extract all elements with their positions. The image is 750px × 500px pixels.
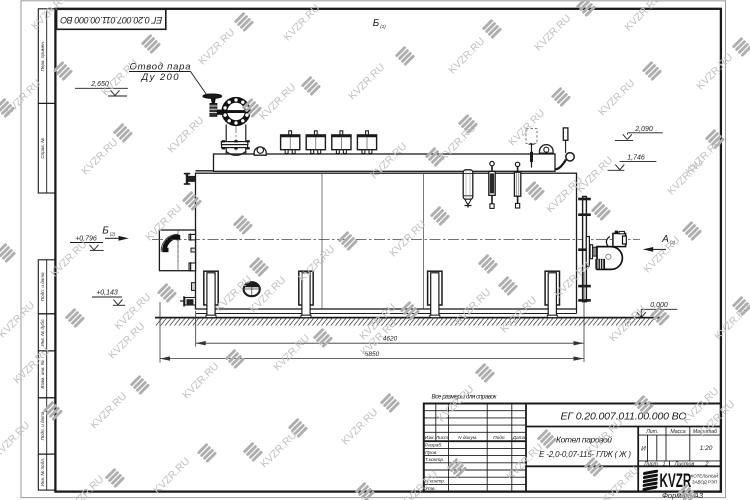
svg-text:Подп. и дата: Подп. и дата (40, 272, 45, 301)
svg-text:Масса: Масса (670, 429, 685, 435)
svg-text:Лист: Лист (643, 461, 658, 467)
svg-text:KVZR.RU: KVZR.RU (79, 136, 120, 177)
svg-text:Подп. и дата: Подп. и дата (40, 411, 45, 440)
svg-text:Т.контр.: Т.контр. (425, 457, 444, 463)
svg-text:KVZR.RU: KVZR.RU (0, 299, 37, 340)
svg-text:KVZR.RU: KVZR.RU (506, 107, 547, 148)
svg-text:N докум.: N докум. (458, 435, 477, 441)
svg-text:KVZR.RU: KVZR.RU (99, 57, 140, 98)
svg-text:KVZR.RU: KVZR.RU (665, 156, 706, 197)
svg-text:Изм.: Изм. (425, 435, 435, 441)
svg-text:Инв. № дубл.: Инв. № дубл. (40, 318, 45, 346)
svg-text:Лист: Лист (435, 435, 448, 441)
svg-text:ЕГ 0.20.007.011.00.000 ВО: ЕГ 0.20.007.011.00.000 ВО (561, 411, 687, 423)
svg-text:КОТЕЛЬНЫЙ: КОТЕЛЬНЫЙ (691, 474, 719, 479)
svg-text:+0,143: +0,143 (96, 290, 118, 297)
svg-text:1,746: 1,746 (627, 155, 645, 162)
svg-text:1: 1 (663, 461, 666, 467)
svg-text:KVZR.RU: KVZR.RU (11, 345, 52, 386)
svg-text:KVZR.RU: KVZR.RU (622, 0, 663, 33)
svg-text:KVZR.RU: KVZR.RU (446, 35, 487, 76)
svg-text:KVZR.RU: KVZR.RU (151, 455, 192, 496)
svg-text:ЗАВОД РЭП: ЗАВОД РЭП (692, 480, 718, 485)
svg-text:Справ. №: Справ. № (40, 138, 45, 159)
svg-text:Листов: Листов (674, 461, 695, 467)
svg-text:KVZR.RU: KVZR.RU (339, 406, 380, 447)
svg-text:KVZR.RU: KVZR.RU (258, 429, 299, 470)
svg-text:Перв. примен.: Перв. примен. (40, 41, 45, 72)
svg-text:KVZR.RU: KVZR.RU (165, 114, 206, 155)
svg-text:Б: Б (373, 18, 380, 29)
svg-text:KVZR: KVZR (660, 470, 692, 492)
svg-text:Ду 200: Ду 200 (141, 72, 180, 83)
svg-text:KVZR.RU: KVZR.RU (65, 473, 106, 500)
svg-text:2: 2 (705, 461, 709, 467)
svg-text:(2): (2) (110, 232, 116, 237)
svg-text:2,090: 2,090 (634, 126, 653, 133)
svg-text:ЕГ 0.20.007.011.00.000 ВО: ЕГ 0.20.007.011.00.000 ВО (60, 15, 162, 25)
svg-text:KVZR.RU: KVZR.RU (106, 320, 147, 361)
svg-text:Пров.: Пров. (425, 450, 438, 456)
svg-text:KVZR.RU: KVZR.RU (532, 12, 573, 53)
svg-text:KVZR.RU: KVZR.RU (88, 390, 129, 431)
svg-text:KVZR.RU: KVZR.RU (180, 360, 221, 401)
svg-text:KVZR.RU: KVZR.RU (271, 332, 312, 373)
svg-text:KVZR.RU: KVZR.RU (574, 154, 615, 195)
svg-text:1:20: 1:20 (700, 445, 713, 452)
svg-text:KVZR.RU: KVZR.RU (600, 464, 641, 500)
svg-text:И: И (641, 446, 646, 453)
svg-text:KVZR.RU: KVZR.RU (0, 419, 32, 460)
svg-text:KVZR.RU: KVZR.RU (596, 77, 637, 118)
svg-text:KVZR.RU: KVZR.RU (607, 303, 648, 344)
svg-text:KVZR.RU: KVZR.RU (257, 81, 298, 122)
svg-text:KVZR.RU: KVZR.RU (504, 441, 545, 482)
svg-text:Разраб.: Разраб. (425, 443, 442, 449)
svg-text:Е -2,0-0,07-115- ГЛЖ ( Ж ): Е -2,0-0,07-115- ГЛЖ ( Ж ) (539, 450, 631, 459)
svg-text:KVZR.RU: KVZR.RU (196, 26, 237, 67)
svg-text:Подп.: Подп. (493, 435, 506, 441)
svg-text:Дата: Дата (512, 435, 526, 441)
svg-text:Б: Б (102, 226, 109, 237)
svg-text:(2): (2) (380, 24, 386, 29)
svg-text:KVZR.RU: KVZR.RU (346, 61, 387, 102)
svg-text:Лит.: Лит. (645, 429, 658, 435)
svg-text:KVZR.RU: KVZR.RU (694, 51, 735, 92)
svg-text:Инв. № подл.: Инв. № подл. (40, 458, 45, 487)
